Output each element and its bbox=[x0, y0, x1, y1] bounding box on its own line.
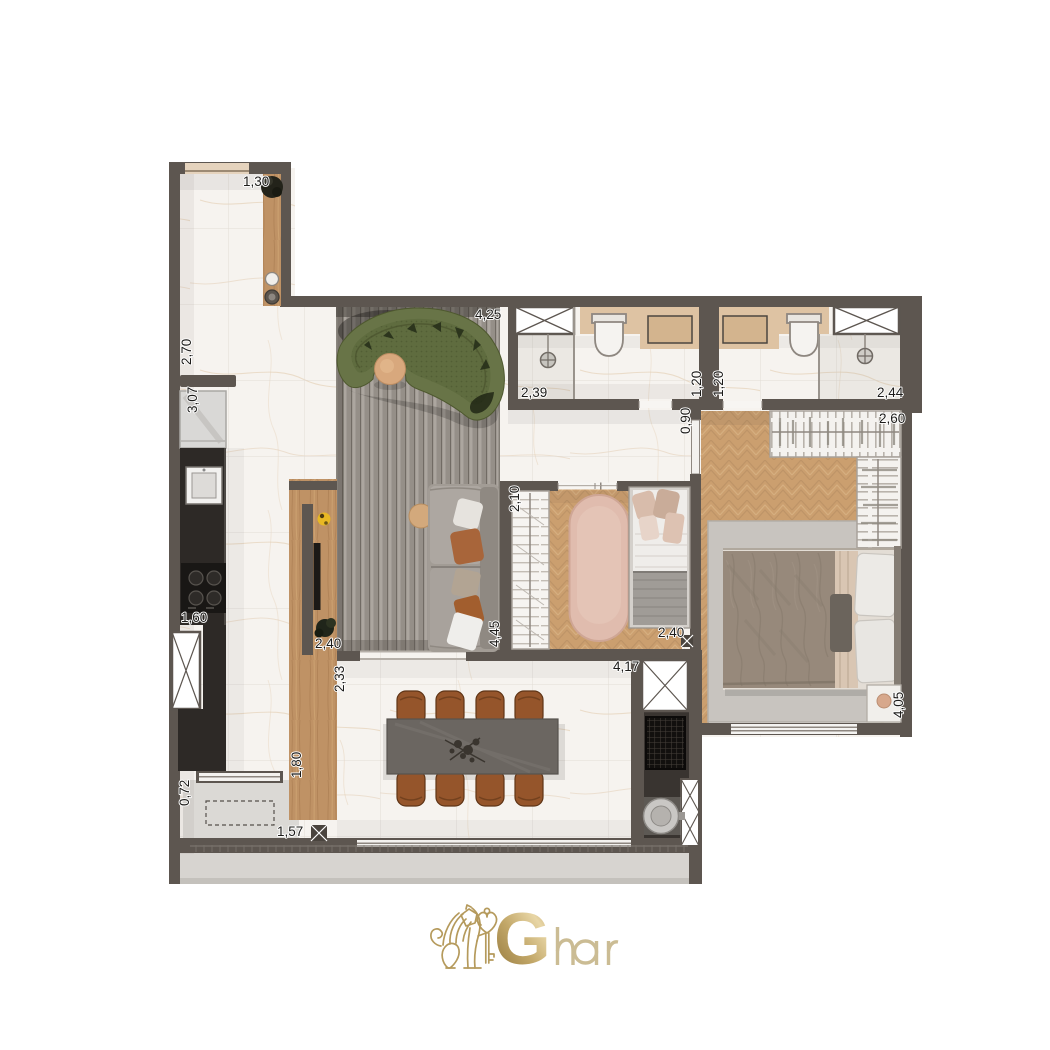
svg-text:1,20: 1,20 bbox=[689, 371, 704, 397]
svg-text:4,05: 4,05 bbox=[891, 692, 906, 718]
svg-text:2,44: 2,44 bbox=[877, 385, 904, 400]
svg-text:4,17: 4,17 bbox=[613, 659, 639, 674]
svg-text:1,60: 1,60 bbox=[181, 610, 207, 625]
svg-text:2,70: 2,70 bbox=[179, 339, 194, 365]
svg-text:1,57: 1,57 bbox=[277, 824, 303, 839]
svg-text:2,60: 2,60 bbox=[879, 411, 905, 426]
svg-text:2,33: 2,33 bbox=[332, 666, 347, 692]
svg-text:1,80: 1,80 bbox=[289, 752, 304, 778]
svg-text:1,20: 1,20 bbox=[711, 371, 726, 397]
svg-text:2,10: 2,10 bbox=[507, 486, 522, 512]
svg-text:1,30: 1,30 bbox=[243, 174, 269, 189]
svg-text:4,45: 4,45 bbox=[487, 621, 502, 647]
svg-text:G: G bbox=[494, 899, 551, 980]
svg-text:2,39: 2,39 bbox=[521, 385, 547, 400]
svg-text:0,72: 0,72 bbox=[177, 780, 192, 806]
svg-text:2,40: 2,40 bbox=[658, 625, 684, 640]
svg-text:0,90: 0,90 bbox=[678, 408, 693, 434]
svg-text:3,07: 3,07 bbox=[185, 387, 200, 413]
svg-text:2,40: 2,40 bbox=[315, 636, 341, 651]
svg-text:4,25: 4,25 bbox=[475, 307, 501, 322]
